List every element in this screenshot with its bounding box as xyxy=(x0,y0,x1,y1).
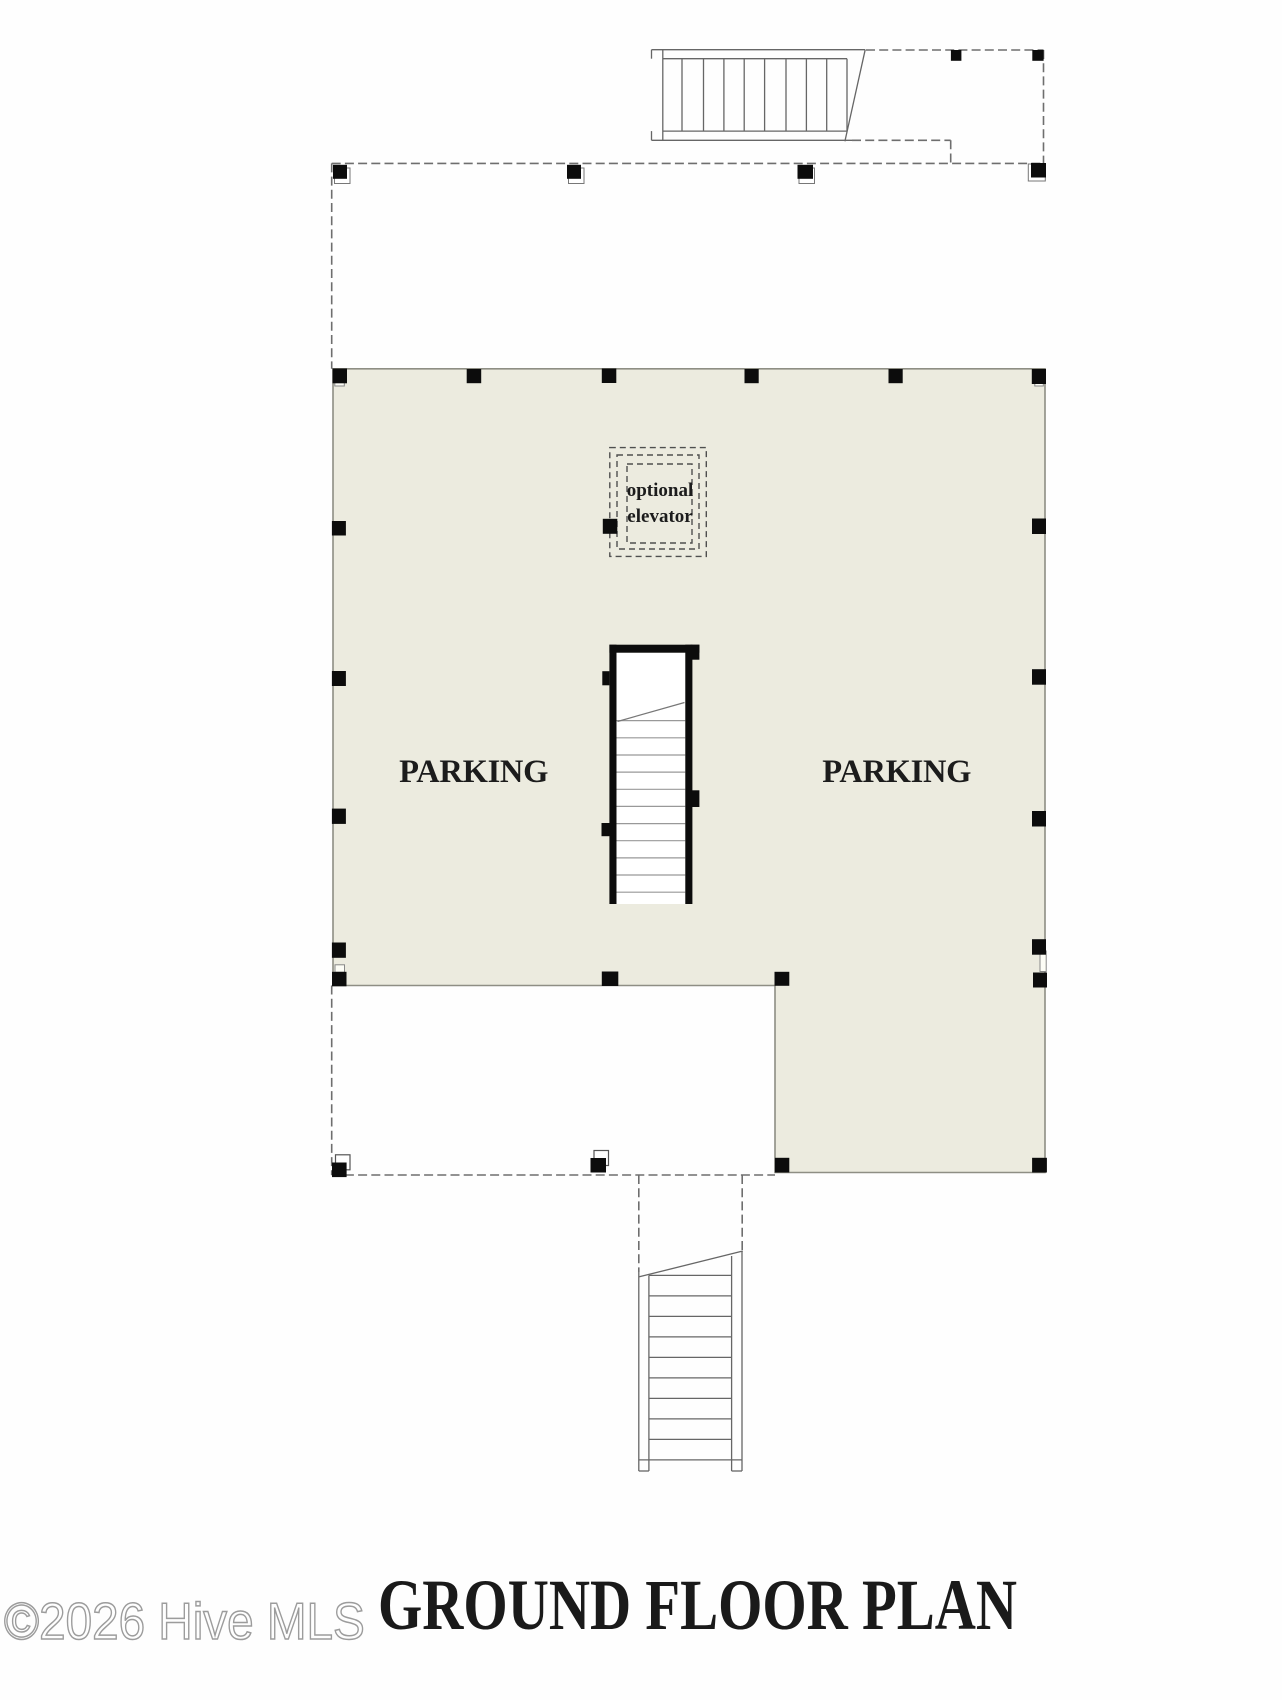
svg-text:PARKING: PARKING xyxy=(822,754,971,790)
svg-text:elevator: elevator xyxy=(627,506,693,527)
svg-text:optional: optional xyxy=(627,480,694,501)
svg-text:PARKING: PARKING xyxy=(399,754,548,790)
